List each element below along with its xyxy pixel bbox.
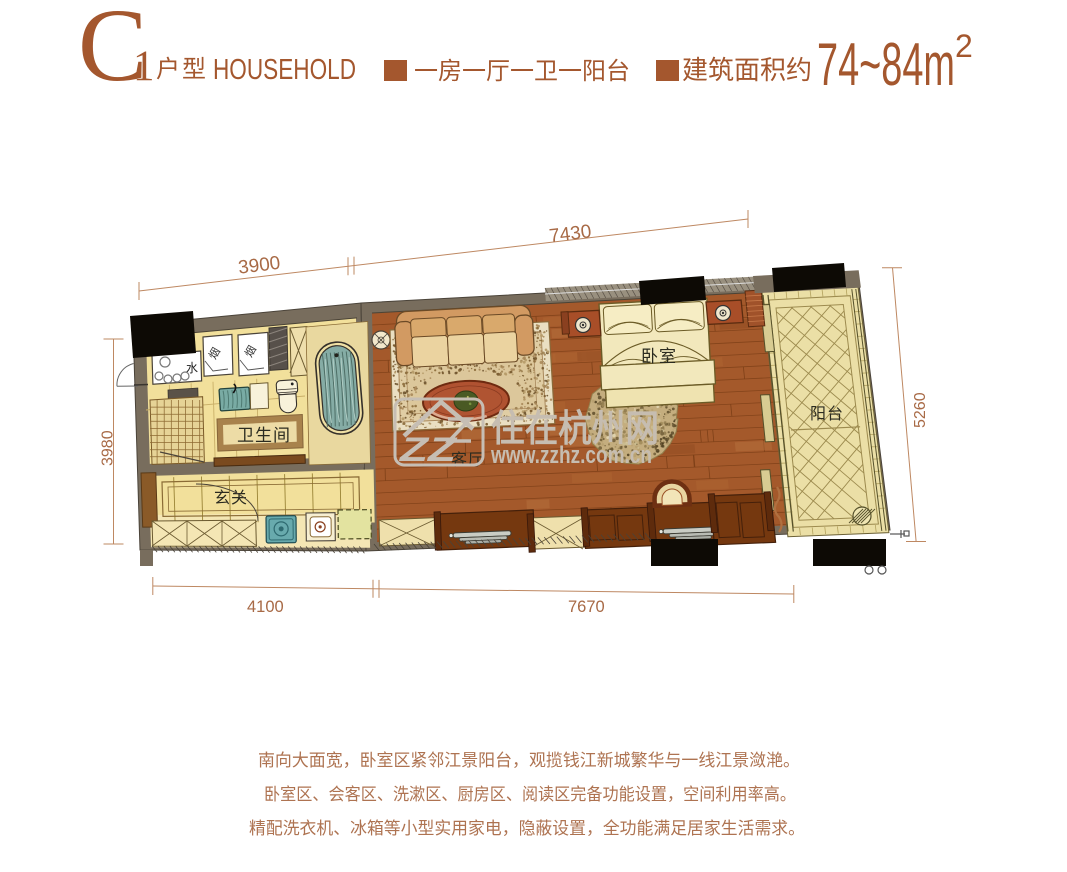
svg-text:水: 水 xyxy=(186,361,198,375)
svg-text:户型: 户型 xyxy=(156,56,208,83)
svg-text:1: 1 xyxy=(133,43,155,90)
svg-text:建筑面积约: 建筑面积约 xyxy=(682,55,812,85)
svg-text:3980: 3980 xyxy=(100,430,117,466)
svg-text:卧室区、会客区、洗漱区、厨房区、阅读区完备功能设置，空间利用: 卧室区、会客区、洗漱区、厨房区、阅读区完备功能设置，空间利用率高。 xyxy=(264,785,796,804)
svg-text:7670: 7670 xyxy=(568,598,605,616)
svg-text:南向大面宽，卧室区紧邻江景阳台，观揽钱江新城繁华与一线江景潋: 南向大面宽，卧室区紧邻江景阳台，观揽钱江新城繁华与一线江景潋滟。 xyxy=(258,751,800,770)
svg-text:2: 2 xyxy=(955,28,973,64)
svg-text:5260: 5260 xyxy=(912,392,929,428)
svg-text:阳台: 阳台 xyxy=(810,405,844,423)
svg-text:精配洗衣机、冰箱等小型实用家电，隐蔽设置，全功能满足居家生活: 精配洗衣机、冰箱等小型实用家电，隐蔽设置，全功能满足居家生活需求。 xyxy=(249,819,805,838)
svg-text:HOUSEHOLD: HOUSEHOLD xyxy=(213,54,356,86)
svg-text:4100: 4100 xyxy=(247,598,284,616)
svg-text:ZZ: ZZ xyxy=(399,431,458,469)
svg-text:一房一厅一卫一阳台: 一房一厅一卫一阳台 xyxy=(414,58,630,85)
svg-text:玄关: 玄关 xyxy=(214,489,248,507)
svg-text:卧室: 卧室 xyxy=(641,347,677,366)
svg-text:74~84m: 74~84m xyxy=(817,31,955,98)
svg-text:卫生间: 卫生间 xyxy=(237,426,291,445)
svg-text:www.zzhz.com.cn: www.zzhz.com.cn xyxy=(490,442,652,469)
